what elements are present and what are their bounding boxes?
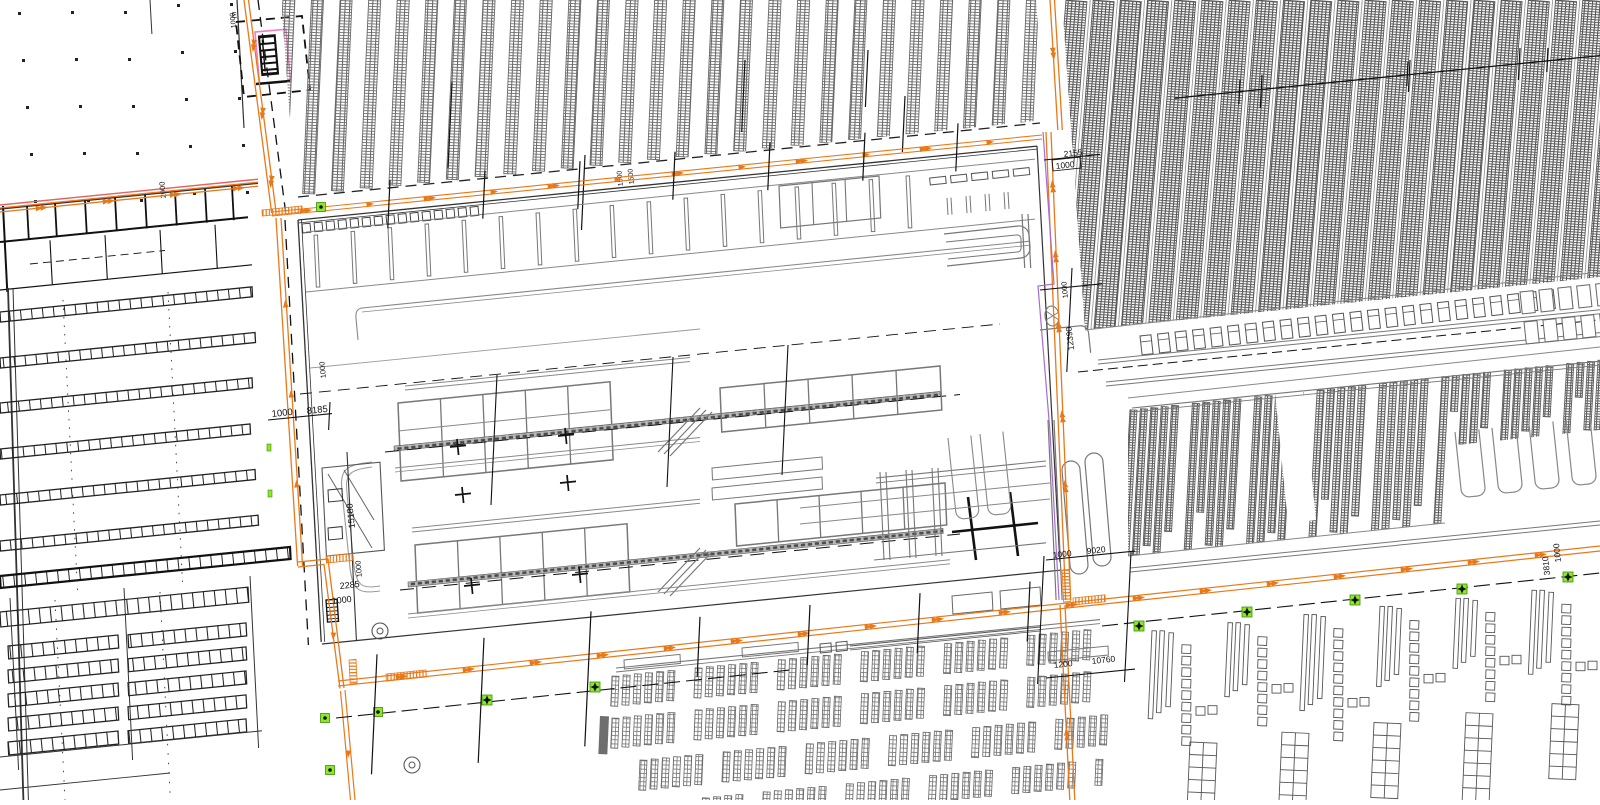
svg-text:2285: 2285	[339, 579, 360, 591]
svg-text:9020: 9020	[1086, 544, 1106, 556]
svg-text:1000: 1000	[317, 361, 328, 379]
svg-text:1000: 1000	[1052, 548, 1072, 560]
svg-text:8185: 8185	[306, 404, 328, 417]
svg-text:1000: 1000	[1551, 543, 1563, 563]
svg-text:1000: 1000	[271, 407, 293, 420]
svg-text:1000: 1000	[353, 560, 364, 578]
svg-text:1000: 1000	[1055, 159, 1075, 171]
svg-text:1000: 1000	[331, 594, 352, 606]
svg-text:1200: 1200	[1053, 658, 1073, 670]
svg-text:3810: 3810	[1540, 556, 1552, 576]
svg-text:1000: 1000	[1059, 281, 1070, 299]
